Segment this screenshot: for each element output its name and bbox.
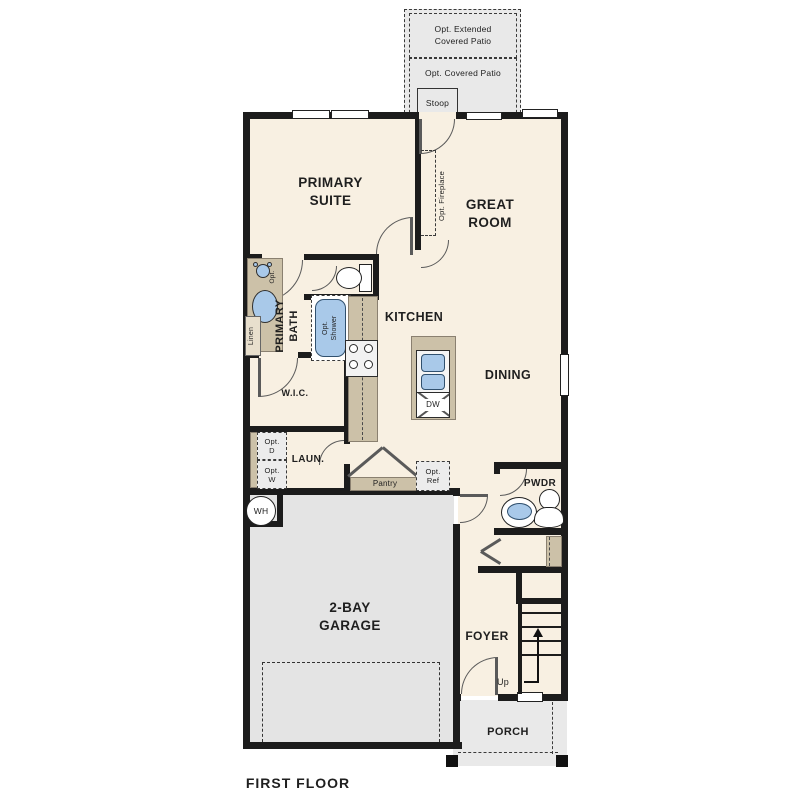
stair-tread <box>521 612 567 614</box>
wall-segment <box>304 254 375 260</box>
porch-post <box>446 755 458 767</box>
toilet-bowl-icon <box>507 503 532 520</box>
pantry-label: Pantry <box>352 478 418 490</box>
opt-washer-label: Opt. W <box>265 466 280 484</box>
opt-extended-covered-patio: Opt. Extended Covered Patio <box>409 13 517 58</box>
opt-sink-label: Opt. <box>268 266 278 288</box>
burner-icon <box>349 344 358 353</box>
window <box>560 354 569 396</box>
water-heater-label: WH <box>254 506 269 516</box>
opt-shower-label: Opt. Shower <box>321 301 341 355</box>
porch-dash-bottom <box>458 752 558 753</box>
stair-up-arrow-shaft <box>537 636 539 683</box>
dishwasher-label: DW <box>422 399 444 411</box>
wall-segment <box>478 566 568 573</box>
garage-door-outline <box>262 662 440 742</box>
back-door-leaf <box>419 119 422 154</box>
opt-fireplace-outline <box>421 150 436 236</box>
window <box>466 112 502 120</box>
opt-extended-covered-patio-label: Opt. Extended Covered Patio <box>435 24 492 47</box>
back-door-opening <box>419 112 456 119</box>
foyer-label: FOYER <box>457 629 517 645</box>
stoop-label: Stoop <box>426 98 449 108</box>
burner-icon <box>364 344 373 353</box>
pedestal-sink-icon <box>534 507 564 528</box>
dining-label: DINING <box>478 367 538 383</box>
opt-refrigerator-label: Opt. Ref <box>426 467 441 485</box>
opt-dryer: Opt. D <box>257 432 287 460</box>
opt-dryer-label: Opt. D <box>265 437 280 455</box>
toilet-icon <box>336 267 362 289</box>
water-heater-icon: WH <box>246 496 276 526</box>
window <box>292 110 330 119</box>
stair-tread <box>521 626 567 628</box>
opt-refrigerator: Opt. Ref <box>416 461 450 491</box>
burner-icon <box>364 360 373 369</box>
faucet-knob-icon <box>253 262 258 267</box>
sheet-title: FIRST FLOOR <box>238 774 358 792</box>
stair-up-arrow-foot <box>524 681 539 683</box>
floor-plan: Opt. Extended Covered Patio Opt. Covered… <box>0 0 810 810</box>
stair-tread <box>521 640 567 642</box>
window <box>331 110 369 119</box>
stair-rail <box>518 604 522 694</box>
stairs-up-label: Up <box>492 677 514 689</box>
laundry-label: LAUN. <box>288 452 328 466</box>
wall-segment <box>494 462 568 469</box>
opt-washer: Opt. W <box>257 460 287 489</box>
pwdr-label: PWDR <box>516 476 564 490</box>
linen-label: Linen <box>246 318 258 354</box>
porch-label: PORCH <box>478 724 538 740</box>
window <box>522 109 558 118</box>
kitchen-label: KITCHEN <box>380 309 448 325</box>
garage-entry-door-leaf <box>460 494 488 497</box>
sink-basin-icon <box>421 354 445 372</box>
sink-basin-icon <box>421 374 445 390</box>
stair-tread <box>521 654 567 656</box>
porch-post <box>556 755 568 767</box>
primary-suite-door-leaf <box>410 218 413 255</box>
wic-label: W.I.C. <box>272 387 318 401</box>
garage-label: 2-BAY GARAGE <box>305 598 395 636</box>
primary-bath-label: PRIMARY BATH <box>271 294 305 358</box>
opt-covered-patio-label: Opt. Covered Patio <box>425 68 501 78</box>
wic-door-leaf <box>258 358 261 397</box>
primary-suite-label: PRIMARY SUITE <box>283 172 378 212</box>
burner-icon <box>349 360 358 369</box>
wall-segment <box>518 598 568 604</box>
closet-shelf-dash <box>549 537 550 566</box>
great-room-label: GREAT ROOM <box>444 194 536 234</box>
porch-dash-right <box>552 702 553 754</box>
wall-segment <box>494 528 568 535</box>
wall-segment <box>243 742 462 749</box>
